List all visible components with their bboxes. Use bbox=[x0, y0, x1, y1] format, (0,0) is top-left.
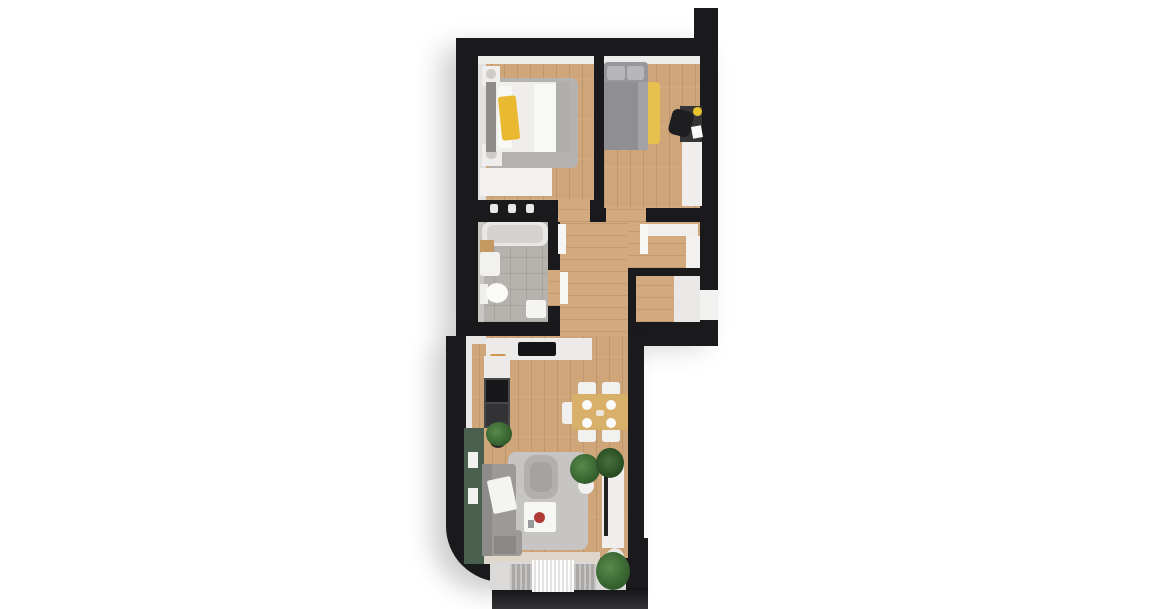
floor-plan-canvas bbox=[0, 0, 1169, 609]
toilet-bowl bbox=[486, 283, 508, 303]
bed2-duvet-fold bbox=[638, 82, 648, 150]
bed2-pillow-1 bbox=[607, 66, 625, 80]
bed1-sheet-fold bbox=[534, 84, 556, 152]
roof-notch bbox=[694, 8, 718, 42]
bedroom1-top-wall-face bbox=[478, 56, 594, 64]
sofa-gray-blanket bbox=[494, 536, 516, 554]
balcony-mat-ribbed-left bbox=[510, 564, 532, 590]
hallway-corridor-floor bbox=[560, 222, 628, 344]
shower-knob-1 bbox=[490, 204, 498, 213]
plate-4 bbox=[606, 418, 616, 428]
bath-mat bbox=[526, 300, 546, 318]
coffee-table-item bbox=[528, 520, 534, 528]
bedroom2-door-opening bbox=[606, 208, 646, 222]
table-centerpiece bbox=[596, 410, 604, 416]
bathroom-sink bbox=[480, 252, 500, 276]
living-top-wall-face bbox=[466, 336, 486, 344]
balcony-mat-fringe bbox=[532, 560, 574, 592]
bath-wood-shelf bbox=[480, 240, 494, 252]
plate-2 bbox=[606, 400, 616, 410]
bedroom2-wardrobe bbox=[682, 142, 702, 206]
entry-alcove-floor bbox=[636, 276, 674, 322]
coffee-table-bowl bbox=[534, 512, 545, 523]
bed1-end-blanket bbox=[556, 82, 570, 152]
wall-frame-1 bbox=[468, 452, 478, 468]
wall-step-right bbox=[628, 336, 718, 346]
apartment-floor-plan bbox=[0, 0, 1169, 609]
entry-alcove-mat bbox=[674, 276, 700, 322]
dining-chair-4 bbox=[602, 428, 620, 442]
hallway-cabinet bbox=[648, 224, 698, 236]
dining-chair-3 bbox=[578, 428, 596, 442]
kitchen-oven bbox=[486, 380, 508, 402]
desk-lamp bbox=[693, 107, 702, 116]
balcony-plant bbox=[596, 552, 630, 590]
nightstand-lamp-top bbox=[486, 69, 496, 79]
bathtub-basin bbox=[487, 225, 543, 243]
plate-3 bbox=[582, 418, 592, 428]
kitchen-plant bbox=[486, 422, 512, 446]
sofa-backrest bbox=[482, 464, 492, 556]
bedroom1-door-opening bbox=[558, 200, 590, 222]
bedroom1-dresser bbox=[480, 168, 552, 196]
bed2-pillow-2 bbox=[627, 66, 644, 80]
bed1-headboard bbox=[486, 82, 496, 152]
armchair-seat bbox=[530, 462, 552, 492]
plate-1 bbox=[582, 400, 592, 410]
cooktop bbox=[518, 342, 556, 356]
bathroom-door-opening bbox=[548, 270, 560, 306]
shower-knob-3 bbox=[526, 204, 534, 213]
shower-knob-2 bbox=[508, 204, 516, 213]
hallway-wardrobe bbox=[686, 236, 700, 268]
living-left-wall-face bbox=[466, 344, 472, 428]
plant-console bbox=[596, 448, 624, 478]
tv bbox=[604, 476, 608, 536]
bedroom1-door-leaf bbox=[558, 224, 566, 254]
kitchen-counter-left bbox=[484, 356, 510, 378]
balcony-mat-ribbed-right bbox=[574, 564, 596, 590]
entry-door-opening bbox=[700, 290, 718, 320]
wall-frame-2 bbox=[468, 488, 478, 504]
desk-paper bbox=[691, 125, 703, 139]
bathroom-door-leaf bbox=[560, 272, 568, 304]
bedroom2-door-leaf bbox=[640, 224, 648, 254]
